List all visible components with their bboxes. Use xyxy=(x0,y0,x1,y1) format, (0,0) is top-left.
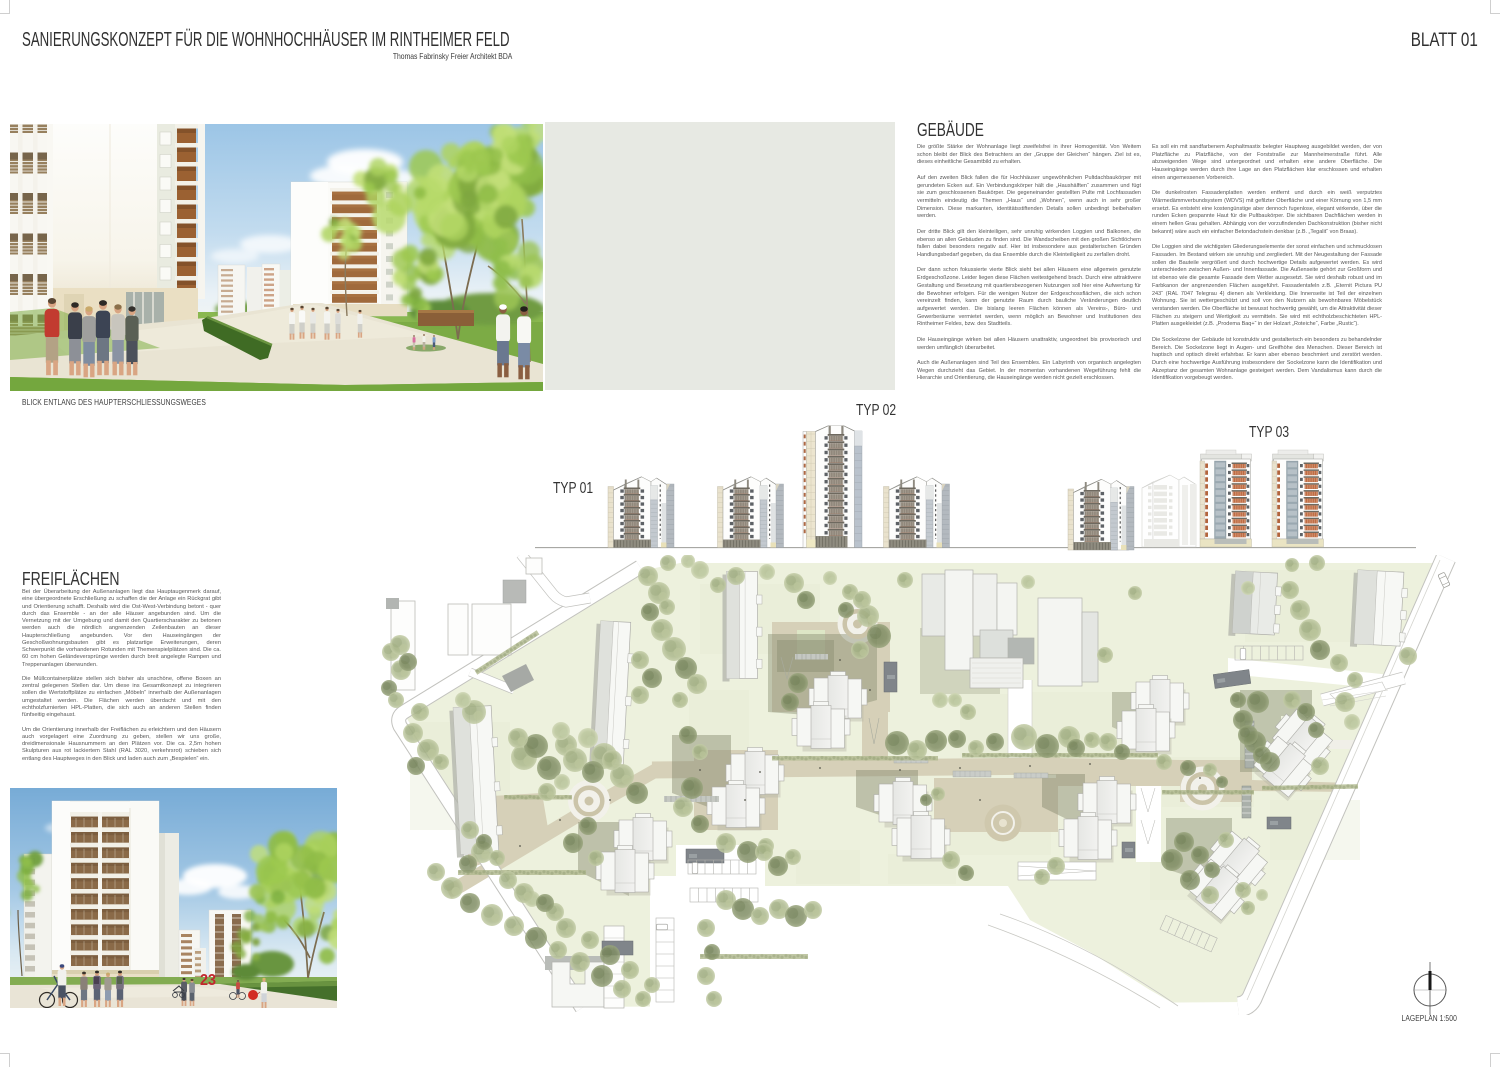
svg-text:23: 23 xyxy=(200,971,216,989)
